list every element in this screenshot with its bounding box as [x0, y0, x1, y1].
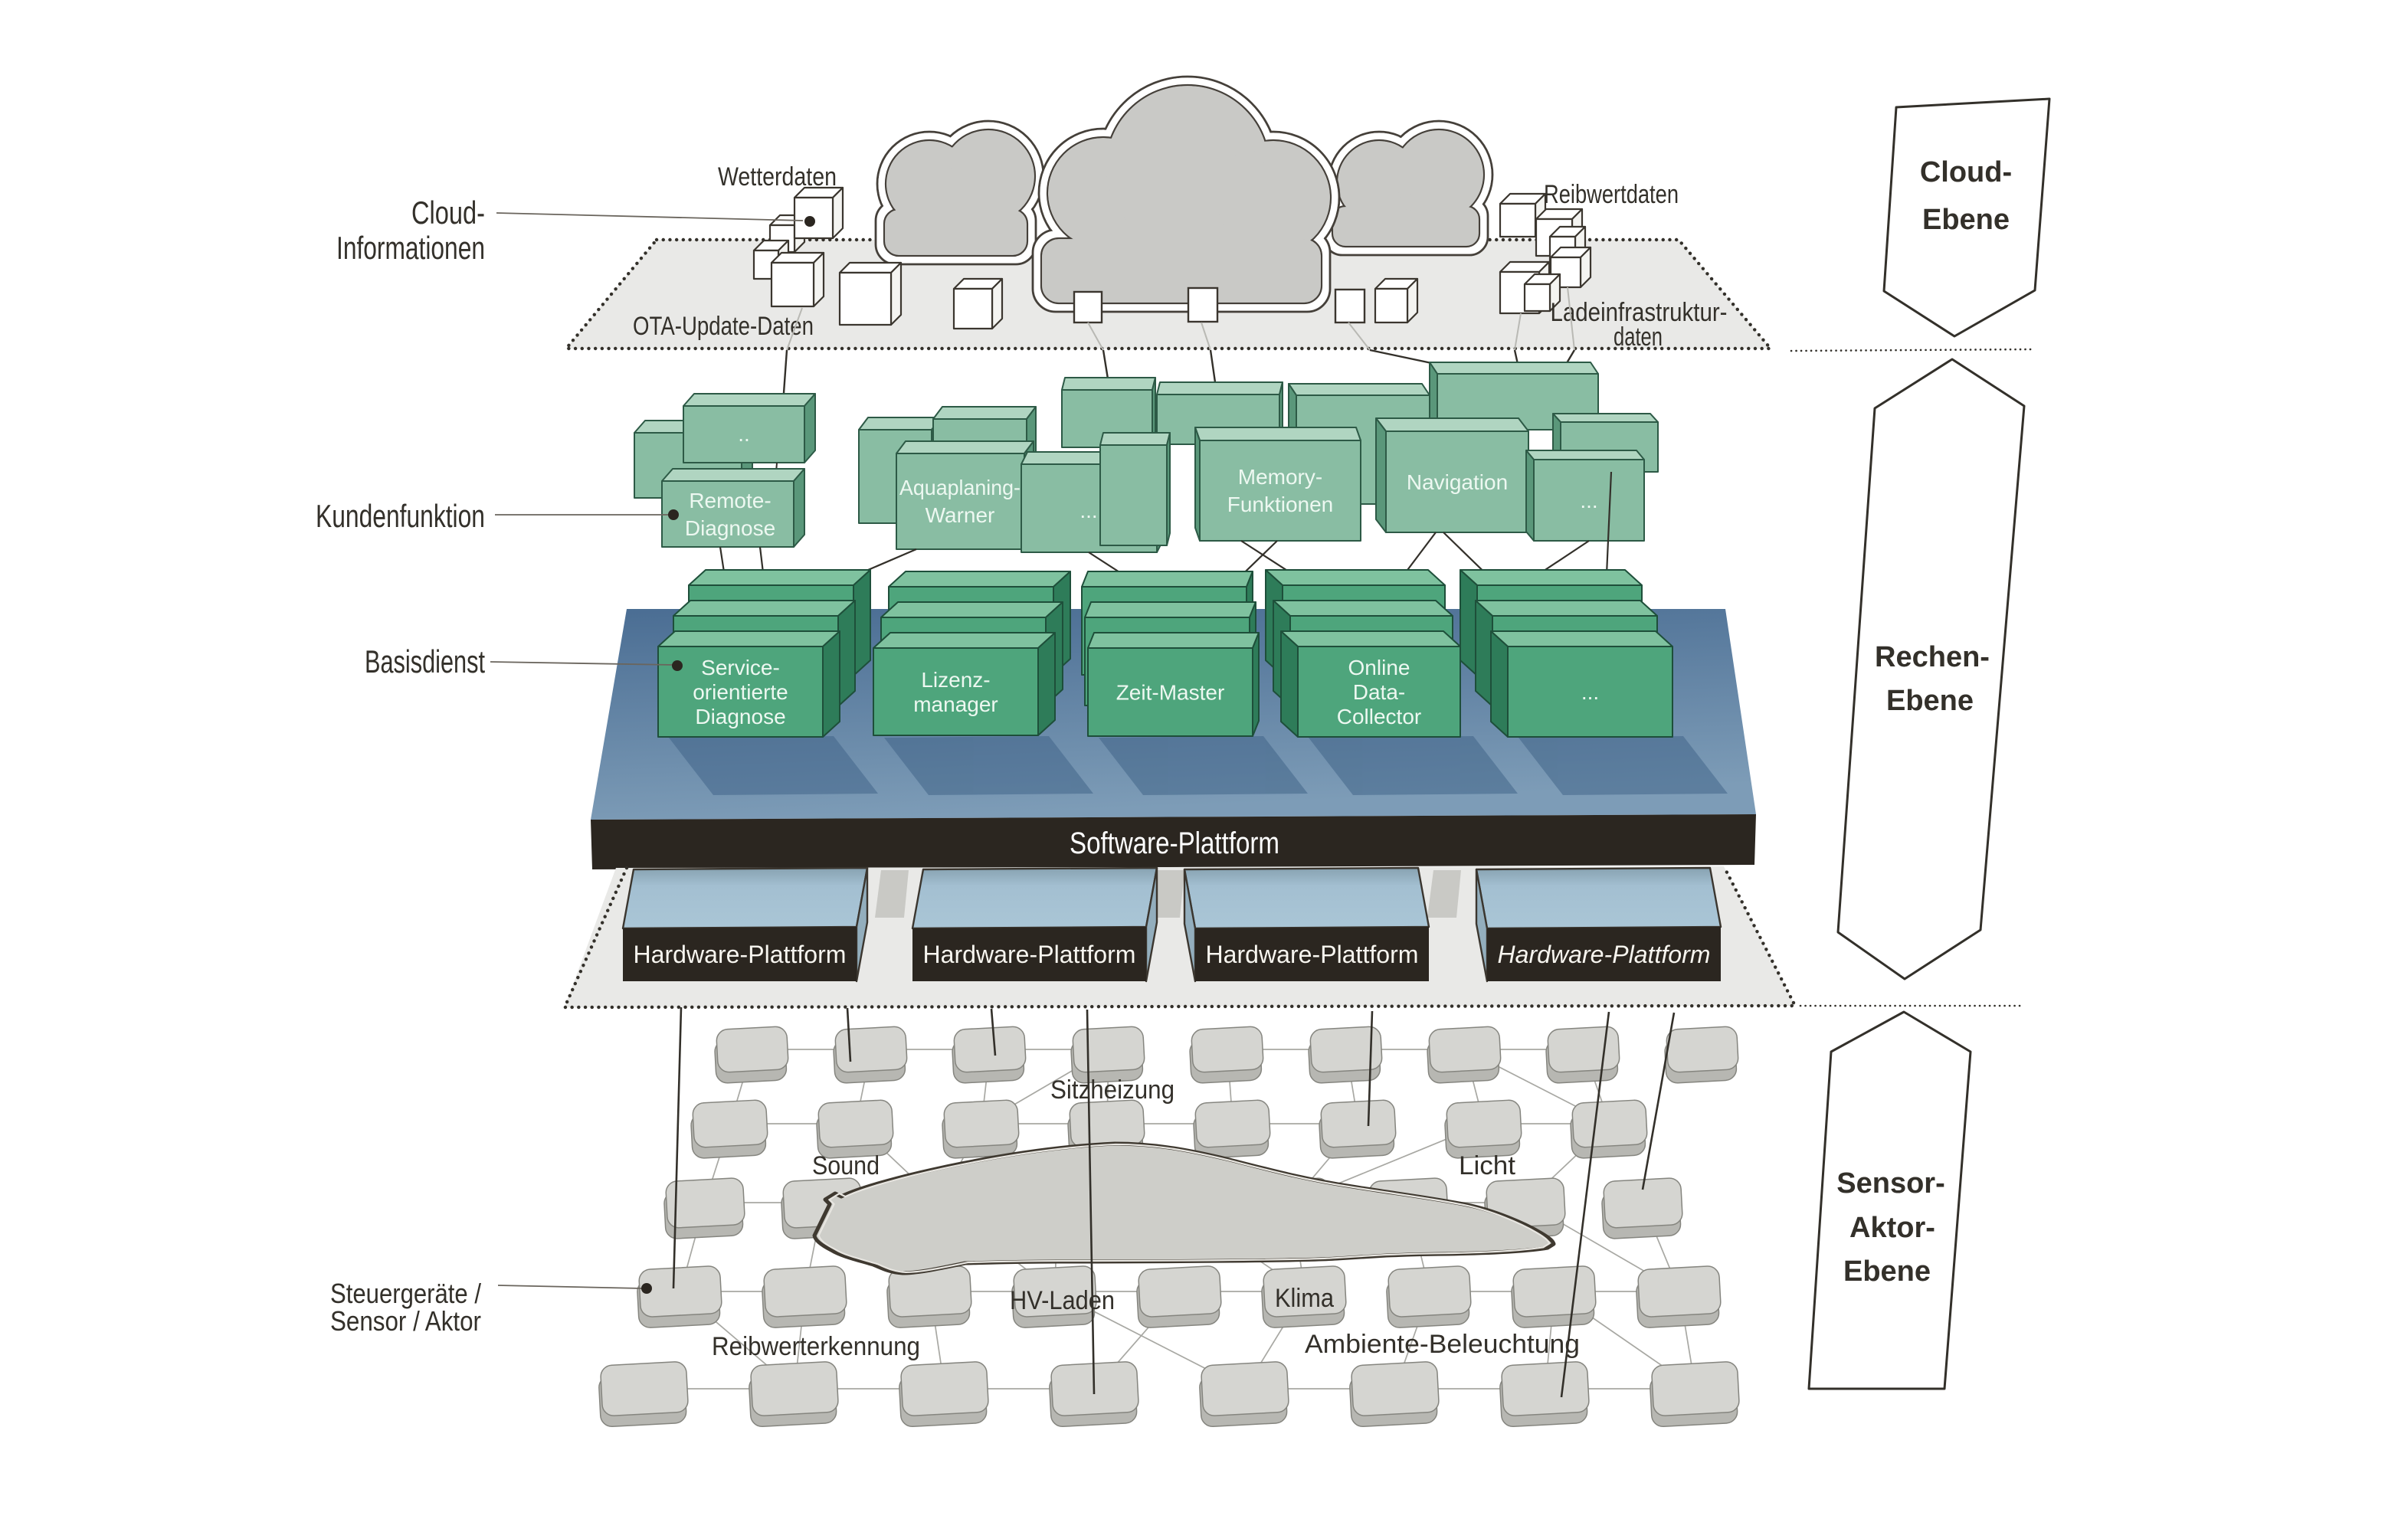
svg-text:Kundenfunktion: Kundenfunktion — [316, 498, 485, 534]
svg-text:Steuergeräte /: Steuergeräte / — [330, 1278, 481, 1309]
svg-text:Reibwerterkennung: Reibwerterkennung — [712, 1332, 920, 1361]
svg-text:Sound: Sound — [812, 1151, 880, 1180]
svg-text:Aktor-: Aktor- — [1849, 1212, 1935, 1244]
svg-text:..: .. — [738, 422, 750, 446]
svg-text:Ebene: Ebene — [1922, 204, 2010, 236]
svg-text:Sensor / Aktor: Sensor / Aktor — [330, 1305, 481, 1337]
svg-text:Hardware-Plattform: Hardware-Plattform — [1206, 941, 1419, 968]
svg-text:...: ... — [1580, 489, 1597, 512]
svg-text:daten: daten — [1614, 322, 1663, 352]
svg-text:Wetterdaten: Wetterdaten — [718, 162, 837, 191]
svg-text:Zeit-Master: Zeit-Master — [1116, 680, 1225, 704]
svg-text:HV-Laden: HV-Laden — [1010, 1286, 1115, 1315]
svg-text:Hardware-Plattform: Hardware-Plattform — [1498, 941, 1711, 968]
svg-text:Ebene: Ebene — [1886, 685, 1974, 717]
svg-text:Service-orientierteDiagnose: Service-orientierteDiagnose — [693, 656, 788, 728]
svg-text:Rechen-: Rechen- — [1875, 641, 1990, 673]
svg-text:Reibwertdaten: Reibwertdaten — [1544, 180, 1679, 209]
svg-text:Cloud-: Cloud- — [1920, 156, 2012, 188]
svg-text:Ambiente-Beleuchtung: Ambiente-Beleuchtung — [1305, 1330, 1580, 1359]
svg-text:OTA-Update-Daten: OTA-Update-Daten — [633, 312, 814, 341]
svg-text:Sensor-: Sensor- — [1836, 1167, 1944, 1200]
svg-text:Licht: Licht — [1459, 1151, 1516, 1180]
svg-text:...: ... — [1080, 499, 1097, 522]
svg-text:...: ... — [1581, 680, 1599, 704]
svg-text:Hardware-Plattform: Hardware-Plattform — [923, 941, 1136, 968]
svg-text:Klima: Klima — [1275, 1284, 1334, 1313]
svg-text:Basisdienst: Basisdienst — [365, 643, 485, 679]
svg-text:Hardware-Plattform: Hardware-Plattform — [634, 941, 847, 968]
svg-text:Navigation: Navigation — [1407, 470, 1508, 494]
svg-text:Cloud-: Cloud- — [411, 195, 485, 231]
svg-text:Sitzheizung: Sitzheizung — [1050, 1075, 1175, 1105]
svg-text:Software-Plattform: Software-Plattform — [1070, 827, 1279, 860]
svg-text:Lizenz-manager: Lizenz-manager — [913, 668, 998, 716]
svg-text:Ebene: Ebene — [1843, 1255, 1931, 1288]
svg-text:Informationen: Informationen — [336, 230, 485, 266]
